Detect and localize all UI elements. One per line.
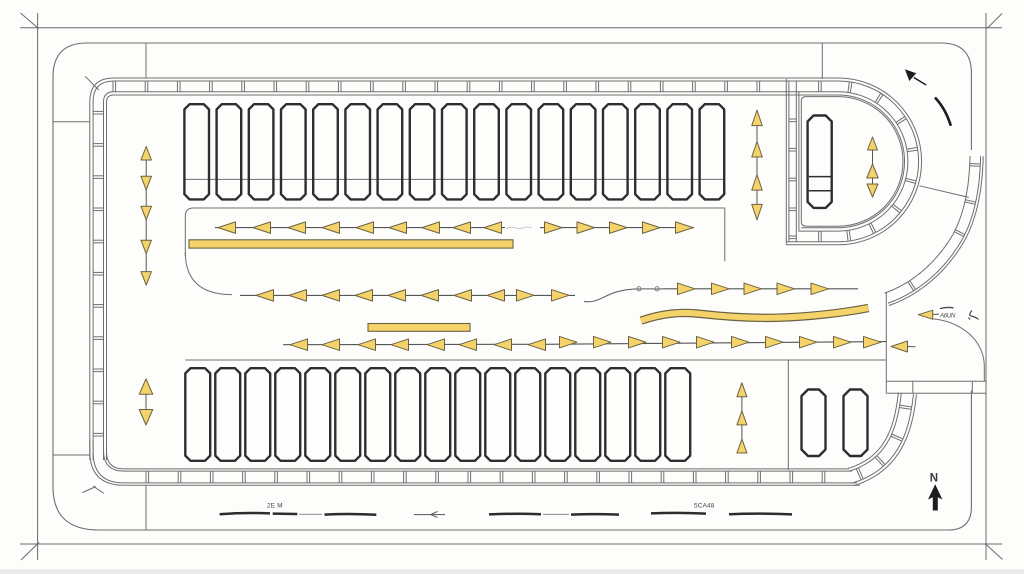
svg-text:A6UN: A6UN bbox=[939, 313, 956, 320]
svg-text:5CA48: 5CA48 bbox=[694, 503, 715, 510]
svg-text:N: N bbox=[930, 473, 938, 485]
svg-text:2E M: 2E M bbox=[267, 503, 283, 510]
